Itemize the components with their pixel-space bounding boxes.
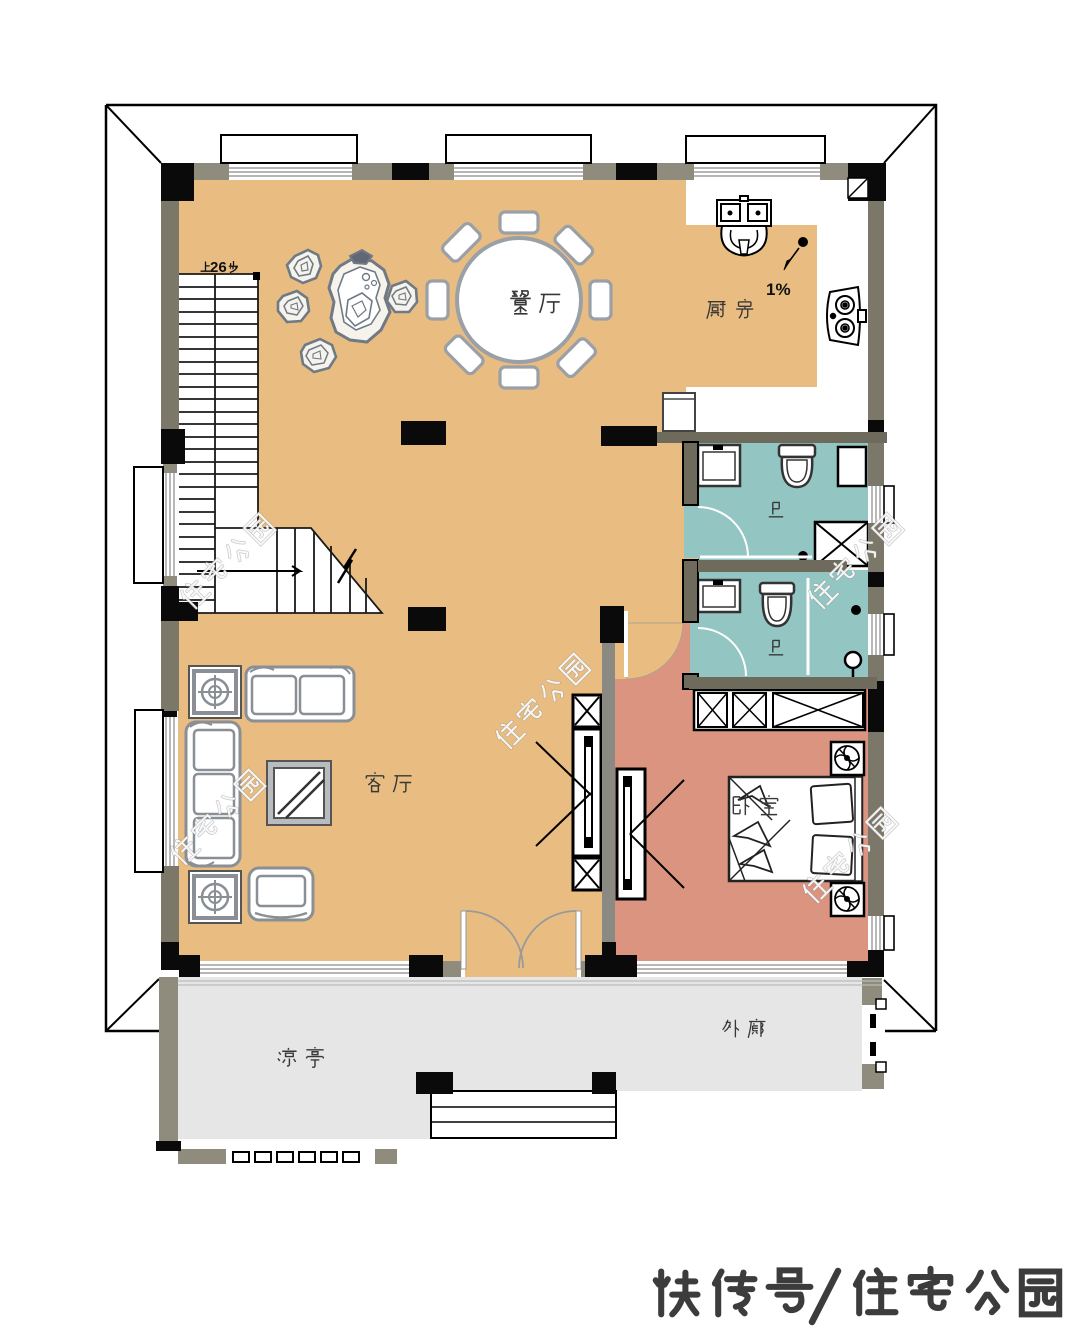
svg-text:1%: 1% — [766, 280, 791, 299]
svg-text:26: 26 — [210, 259, 227, 276]
